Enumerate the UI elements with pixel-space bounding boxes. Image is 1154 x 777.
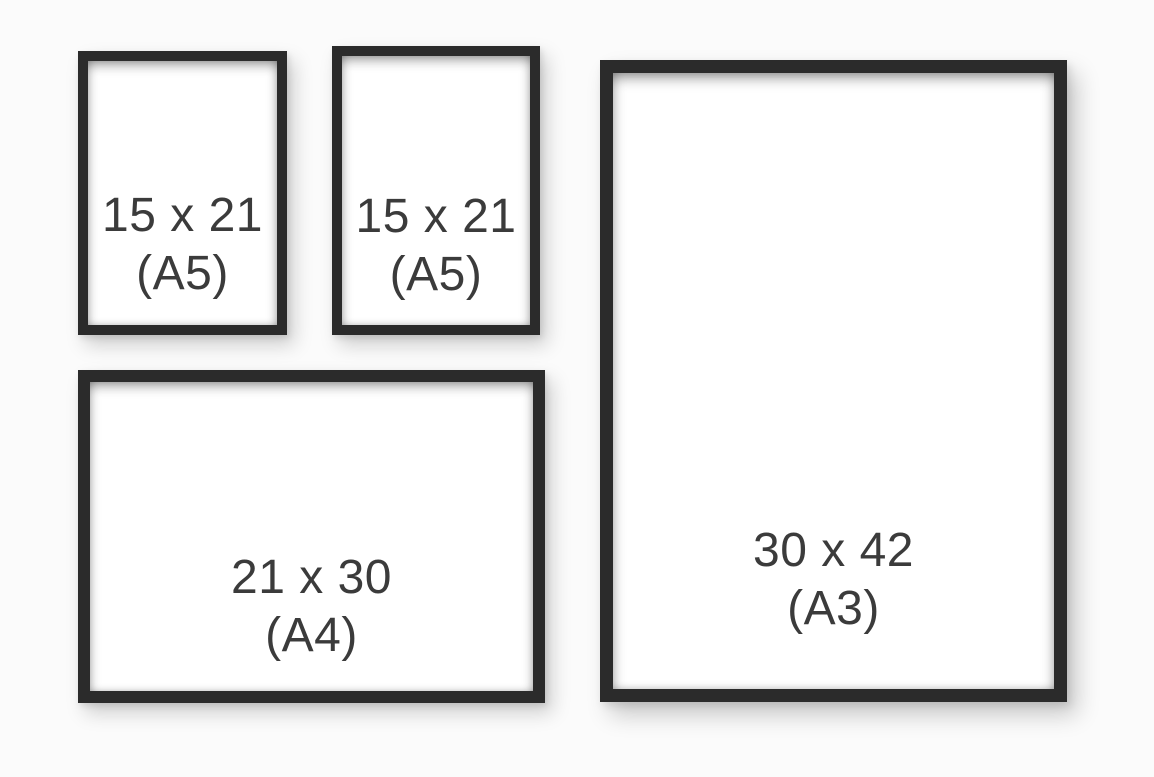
size-label: 15 x 21 (88, 187, 277, 245)
size-label: 21 x 30 (90, 549, 533, 607)
frame-label: 30 x 42 (A3) (613, 522, 1054, 638)
format-label: (A4) (90, 607, 533, 665)
frame-a3-right: 30 x 42 (A3) (600, 60, 1067, 702)
format-label: (A5) (342, 246, 530, 304)
frame-a5-top-left: 15 x 21 (A5) (78, 51, 287, 335)
frame-size-comparison: 15 x 21 (A5) 15 x 21 (A5) 21 x 30 (A4) 3… (0, 0, 1154, 777)
frame-a5-top-middle: 15 x 21 (A5) (332, 46, 540, 335)
frame-label: 15 x 21 (A5) (342, 188, 530, 304)
format-label: (A5) (88, 245, 277, 303)
format-label: (A3) (613, 580, 1054, 638)
frame-a4-bottom-left: 21 x 30 (A4) (78, 370, 545, 703)
frame-label: 21 x 30 (A4) (90, 549, 533, 665)
size-label: 15 x 21 (342, 188, 530, 246)
frame-label: 15 x 21 (A5) (88, 187, 277, 303)
size-label: 30 x 42 (613, 522, 1054, 580)
